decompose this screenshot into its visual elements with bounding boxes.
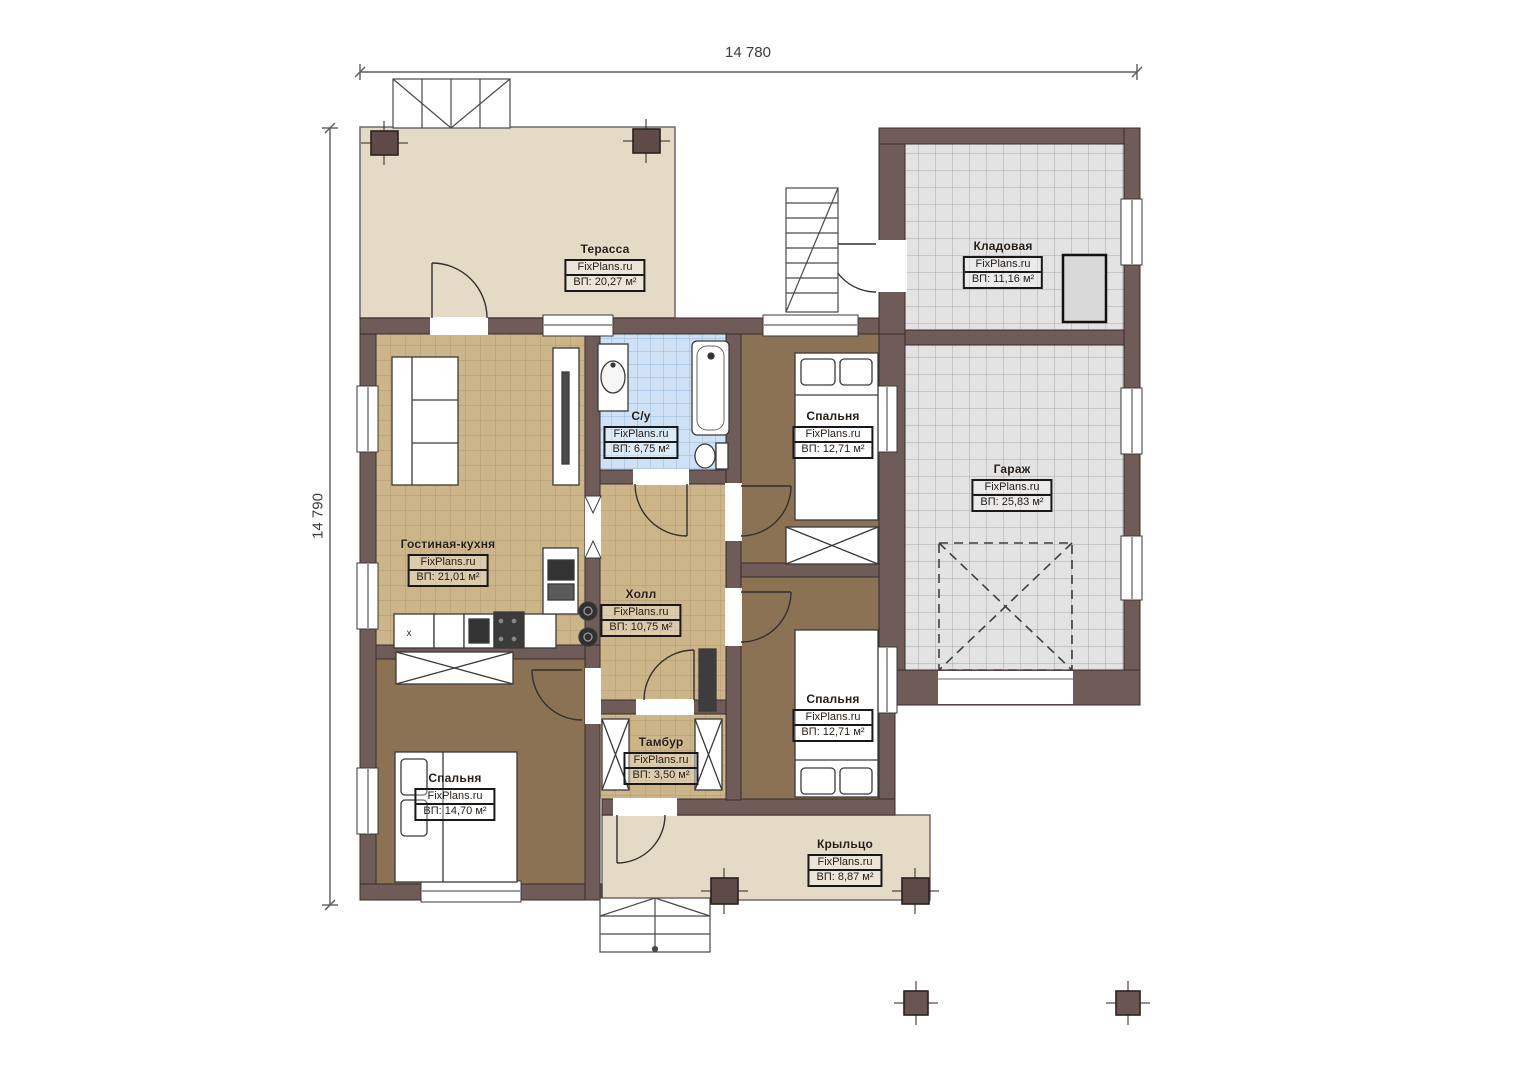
watermark: FixPlans.ru	[409, 556, 486, 572]
room-area: ВП: 11,16 м²	[965, 273, 1041, 287]
room-info-box: FixPlans.ru ВП: 12,71 м²	[792, 709, 873, 742]
room-info-box: FixPlans.ru ВП: 14,70 м²	[414, 788, 495, 821]
watermark: FixPlans.ru	[794, 428, 871, 444]
room-info-box: FixPlans.ru ВП: 11,16 м²	[963, 256, 1043, 289]
room-label-bathroom: С/у FixPlans.ru ВП: 6,75 м²	[603, 410, 678, 459]
watermark: FixPlans.ru	[605, 428, 676, 444]
room-area: ВП: 6,75 м²	[605, 443, 676, 457]
counter-column	[543, 548, 578, 614]
boiler-1	[579, 602, 597, 620]
room-area: ВП: 14,70 м²	[416, 805, 493, 819]
terrace-steps	[393, 79, 510, 128]
yard-column-left	[894, 981, 938, 1025]
watermark: FixPlans.ru	[973, 481, 1050, 497]
bathroom-sink	[598, 344, 628, 411]
bathtub	[692, 341, 729, 435]
watermark: FixPlans.ru	[809, 856, 880, 872]
room-area: ВП: 8,87 м²	[809, 871, 880, 885]
room-label-vestibule: Тамбур FixPlans.ru ВП: 3,50 м²	[623, 736, 698, 785]
room-name: Крыльцо	[807, 838, 882, 852]
room-name: Гостиная-кухня	[401, 538, 496, 552]
boiler-2	[579, 628, 597, 646]
toilet	[695, 443, 728, 469]
room-label-living: Гостиная-кухня FixPlans.ru ВП: 21,01 м²	[401, 538, 496, 587]
stove	[494, 612, 524, 648]
yard-column-right	[1106, 981, 1150, 1025]
washing-machine	[394, 614, 434, 648]
washer-label: x	[407, 628, 412, 639]
room-label-garage: Гараж FixPlans.ru ВП: 25,83 м²	[971, 463, 1052, 512]
counter-2	[524, 614, 556, 648]
room-label-porch: Крыльцо FixPlans.ru ВП: 8,87 м²	[807, 838, 882, 887]
watermark: FixPlans.ru	[625, 754, 696, 770]
floor-plan-page: x 14 780 14 790 Терасса FixPlans.ru ВП: …	[0, 0, 1528, 1080]
room-label-storage: Кладовая FixPlans.ru ВП: 11,16 м²	[963, 240, 1043, 289]
room-name: Холл	[600, 588, 681, 602]
room-info-box: FixPlans.ru ВП: 10,75 м²	[600, 604, 681, 637]
storage-equipment	[1063, 255, 1106, 322]
room-area: ВП: 20,27 м²	[566, 276, 643, 290]
closet-vestibule-right	[695, 719, 722, 790]
room-info-box: FixPlans.ru ВП: 3,50 м²	[623, 752, 698, 785]
tall-cabinet	[553, 348, 579, 485]
room-name: С/у	[603, 410, 678, 424]
room-name: Тамбур	[623, 736, 698, 750]
room-label-terrace: Терасса FixPlans.ru ВП: 20,27 м²	[564, 243, 645, 292]
room-info-box: FixPlans.ru ВП: 21,01 м²	[407, 554, 488, 587]
room-area: ВП: 3,50 м²	[625, 769, 696, 783]
room-name: Спальня	[792, 693, 873, 707]
watermark: FixPlans.ru	[602, 606, 679, 622]
sofa	[392, 357, 458, 485]
porch-steps	[600, 898, 710, 952]
room-info-box: FixPlans.ru ВП: 12,71 м²	[792, 426, 873, 459]
wardrobe-bedroom3	[396, 652, 513, 684]
room-area: ВП: 12,71 м²	[794, 443, 871, 457]
watermark: FixPlans.ru	[965, 258, 1041, 274]
dimension-width-label: 14 780	[725, 44, 771, 61]
room-area: ВП: 10,75 м²	[602, 621, 679, 635]
watermark: FixPlans.ru	[794, 711, 871, 727]
room-label-bedroom2: Спальня FixPlans.ru ВП: 12,71 м²	[792, 693, 873, 742]
room-label-bedroom1: Спальня FixPlans.ru ВП: 12,71 м²	[792, 410, 873, 459]
room-info-box: FixPlans.ru ВП: 8,87 м²	[807, 854, 882, 887]
room-area: ВП: 21,01 м²	[409, 571, 486, 585]
watermark: FixPlans.ru	[416, 790, 493, 806]
room-name: Терасса	[564, 243, 645, 257]
room-label-bedroom3: Спальня FixPlans.ru ВП: 14,70 м²	[414, 772, 495, 821]
room-info-box: FixPlans.ru ВП: 20,27 м²	[564, 259, 645, 292]
room-name: Гараж	[971, 463, 1052, 477]
hall-door-panel	[699, 649, 716, 711]
oven	[548, 560, 574, 580]
room-name: Кладовая	[963, 240, 1043, 254]
counter-1	[434, 614, 464, 648]
watermark: FixPlans.ru	[566, 261, 643, 277]
room-info-box: FixPlans.ru ВП: 6,75 м²	[603, 426, 678, 459]
floor-plan-drawing: x	[0, 0, 1528, 1080]
room-name: Спальня	[792, 410, 873, 424]
dimension-line-top	[355, 64, 1142, 80]
dimension-height-label: 14 790	[310, 493, 327, 539]
microwave	[548, 584, 574, 600]
room-info-box: FixPlans.ru ВП: 25,83 м²	[971, 479, 1052, 512]
side-steps	[786, 188, 838, 312]
room-area: ВП: 12,71 м²	[794, 726, 871, 740]
room-name: Спальня	[414, 772, 495, 786]
room-area: ВП: 25,83 м²	[973, 496, 1050, 510]
wardrobe-bedroom1	[786, 527, 878, 564]
room-label-hall: Холл FixPlans.ru ВП: 10,75 м²	[600, 588, 681, 637]
